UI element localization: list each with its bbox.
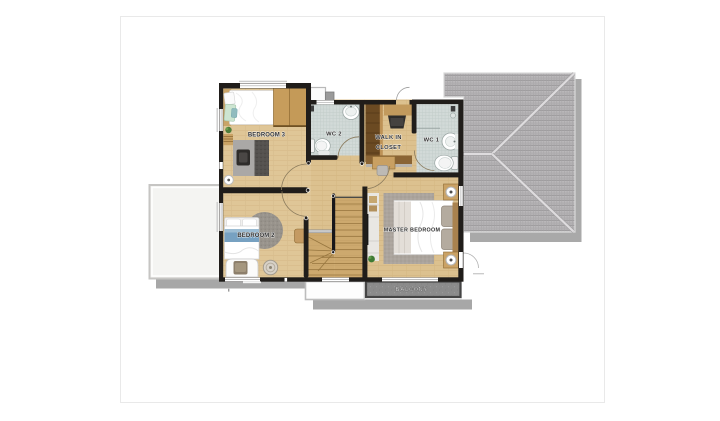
svg-text:CLOSET: CLOSET [376,145,401,151]
svg-text:MASTER BEDROOM: MASTER BEDROOM [384,228,441,234]
svg-text:WC 1: WC 1 [424,137,440,143]
svg-text:WALK IN: WALK IN [375,135,402,141]
svg-text:BEDROOM 3: BEDROOM 3 [248,133,286,139]
svg-text:BEDROOM 2: BEDROOM 2 [237,233,275,239]
svg-text:BALCONY: BALCONY [395,287,427,293]
svg-text:WC 2: WC 2 [326,132,342,138]
